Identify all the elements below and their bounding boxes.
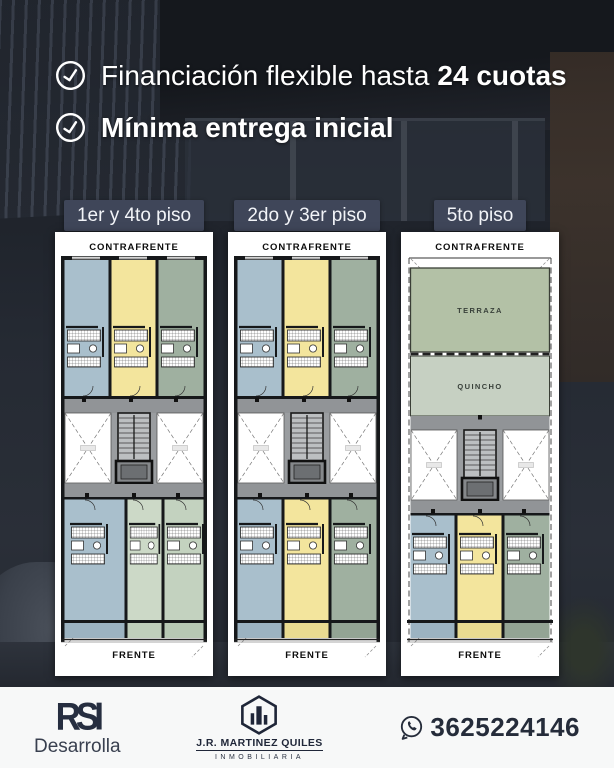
check-circle-icon xyxy=(55,60,86,91)
developer-logo-block: RSI Desarrolla xyxy=(34,699,121,756)
benefit-regular-text: Financiación flexible hasta xyxy=(101,62,429,90)
agency-subtitle: INMOBILIARIA xyxy=(215,754,304,761)
benefits-list: Financiación flexible hasta 24 cuotas Mí… xyxy=(55,60,567,164)
benefit-text: Financiación flexible hasta 24 cuotas xyxy=(101,62,567,90)
benefit-text: Mínima entrega inicial xyxy=(101,114,394,142)
phone-number[interactable]: 3625224146 xyxy=(430,712,580,743)
quincho-label: QUINCHO xyxy=(457,382,502,391)
window-marks xyxy=(72,257,195,260)
check-circle-icon xyxy=(55,112,86,143)
plan-column-3: 5to piso CONTRAFRENTE TERRAZA QUINCHO xyxy=(401,200,559,676)
benefit-row-2: Mínima entrega inicial xyxy=(55,112,567,143)
benefit-bold-text: Mínima entrega inicial xyxy=(101,114,394,142)
plan-title-3: 5to piso xyxy=(434,200,527,231)
plan-top-label: CONTRAFRENTE xyxy=(262,242,351,253)
plan-top-label: CONTRAFRENTE xyxy=(435,242,524,253)
developer-name: Desarrolla xyxy=(34,737,121,756)
plan-bottom-label: FRENTE xyxy=(285,650,328,661)
floor-plan-1: CONTRAFRENTE xyxy=(55,232,213,676)
agency-logo-block: J.R. MARTINEZ QUILES INMOBILIARIA xyxy=(196,694,322,761)
benefit-bold-text: 24 cuotas xyxy=(437,62,566,90)
plan-top-label: CONTRAFRENTE xyxy=(89,242,178,253)
agency-name: J.R. MARTINEZ QUILES xyxy=(196,738,322,751)
footer-bar: RSI Desarrolla J.R. MARTINEZ QUILES INMO… xyxy=(0,687,614,768)
plan-column-2: 2do y 3er piso CONTRAFRENTE xyxy=(228,200,386,676)
floor-plan-3: CONTRAFRENTE TERRAZA QUINCHO xyxy=(401,232,559,676)
plan-column-1: 1er y 4to piso CONTRAFRENTE xyxy=(55,200,213,676)
hexagon-building-icon xyxy=(238,694,280,736)
plan-bottom-label: FRENTE xyxy=(112,650,155,661)
terraza-label: TERRAZA xyxy=(457,306,503,315)
floor-plans-row: 1er y 4to piso CONTRAFRENTE xyxy=(0,200,614,676)
window-marks xyxy=(245,257,368,260)
whatsapp-contact[interactable]: 3625224146 xyxy=(398,712,580,743)
rsi-logo: RSI xyxy=(56,697,99,736)
plan-title-1: 1er y 4to piso xyxy=(64,200,204,231)
benefit-row-1: Financiación flexible hasta 24 cuotas xyxy=(55,60,567,91)
plan-bottom-label: FRENTE xyxy=(458,650,501,661)
whatsapp-icon xyxy=(398,714,425,741)
floor-plan-2: CONTRAFRENTE xyxy=(228,232,386,676)
real-estate-flyer: Financiación flexible hasta 24 cuotas Mí… xyxy=(0,0,614,768)
plan-title-2: 2do y 3er piso xyxy=(234,200,379,231)
